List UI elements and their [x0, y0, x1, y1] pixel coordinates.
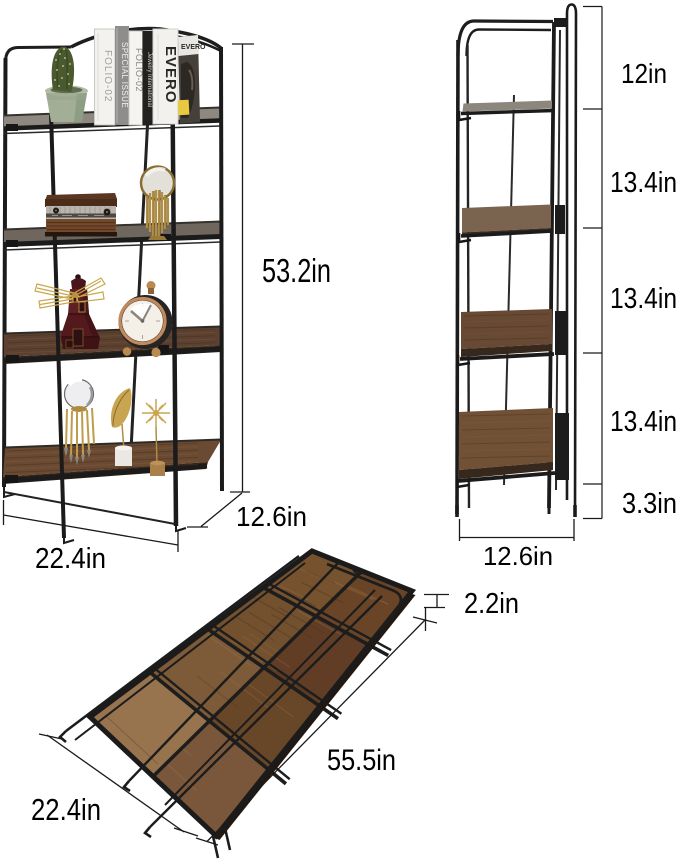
svg-text:22.4in: 22.4in	[31, 792, 101, 827]
svg-text:SPECIAL ISSUE: SPECIAL ISSUE	[120, 42, 129, 108]
svg-text:13.4in: 13.4in	[610, 406, 677, 438]
svg-text:12in: 12in	[621, 58, 667, 89]
svg-text:Jewelry International: Jewelry International	[146, 52, 152, 107]
svg-text:55.5in: 55.5in	[327, 744, 396, 777]
svg-text:12.6in: 12.6in	[483, 541, 553, 571]
svg-text:22.4in: 22.4in	[35, 543, 106, 575]
svg-text:13.4in: 13.4in	[610, 167, 677, 199]
svg-text:12.6in: 12.6in	[236, 501, 307, 532]
svg-text:53.2in: 53.2in	[262, 252, 331, 289]
svg-text:FOLIO-02: FOLIO-02	[102, 50, 113, 102]
svg-text:13.4in: 13.4in	[610, 283, 677, 315]
svg-text:2.2in: 2.2in	[464, 588, 519, 620]
svg-text:EVERO: EVERO	[162, 46, 179, 104]
svg-text:EVERO: EVERO	[181, 44, 206, 51]
svg-text:3.3in: 3.3in	[622, 488, 677, 520]
